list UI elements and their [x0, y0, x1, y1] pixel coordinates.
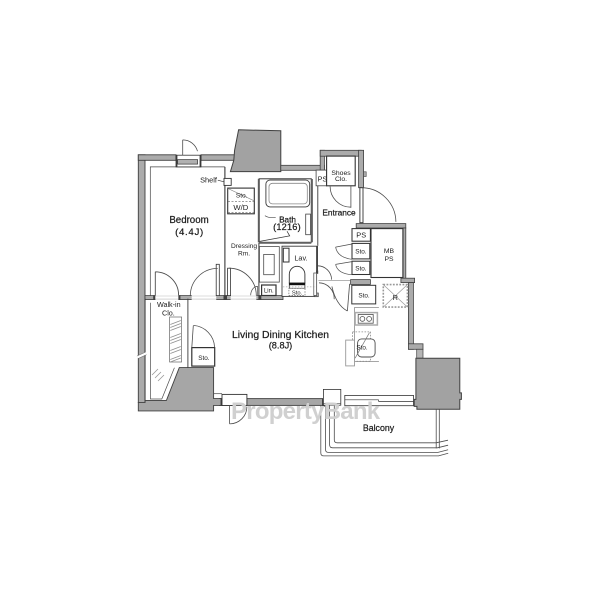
svg-text:Lin.: Lin.: [264, 289, 274, 295]
svg-text:Sto.: Sto.: [356, 345, 367, 352]
svg-text:Clo.: Clo.: [335, 176, 347, 183]
svg-text:Sto.: Sto.: [355, 265, 367, 272]
svg-text:(8.8J): (8.8J): [269, 340, 293, 350]
svg-text:R: R: [393, 293, 398, 302]
svg-text:Dressing: Dressing: [231, 243, 257, 250]
svg-text:Shelf: Shelf: [200, 175, 218, 184]
svg-text:W/D: W/D: [233, 203, 248, 212]
svg-text:MB: MB: [384, 248, 395, 255]
svg-text:Sto.: Sto.: [358, 292, 370, 299]
svg-text:PS: PS: [356, 231, 366, 240]
svg-text:Sto.: Sto.: [198, 355, 210, 362]
svg-text:Rm.: Rm.: [238, 250, 250, 257]
svg-text:PropertyBank: PropertyBank: [231, 398, 381, 425]
svg-text:Lav.: Lav.: [294, 253, 307, 262]
svg-text:Sto.: Sto.: [236, 193, 248, 200]
svg-text:PS: PS: [318, 175, 328, 184]
svg-text:Bedroom: Bedroom: [169, 215, 208, 226]
svg-text:Clo.: Clo.: [162, 309, 175, 318]
svg-text:Sto.: Sto.: [292, 290, 303, 296]
svg-text:(4.4J): (4.4J): [175, 227, 204, 238]
svg-text:PS: PS: [384, 256, 394, 263]
svg-text:Entrance: Entrance: [322, 208, 356, 218]
svg-text:(1216): (1216): [273, 222, 301, 232]
svg-text:Sto.: Sto.: [355, 249, 367, 256]
